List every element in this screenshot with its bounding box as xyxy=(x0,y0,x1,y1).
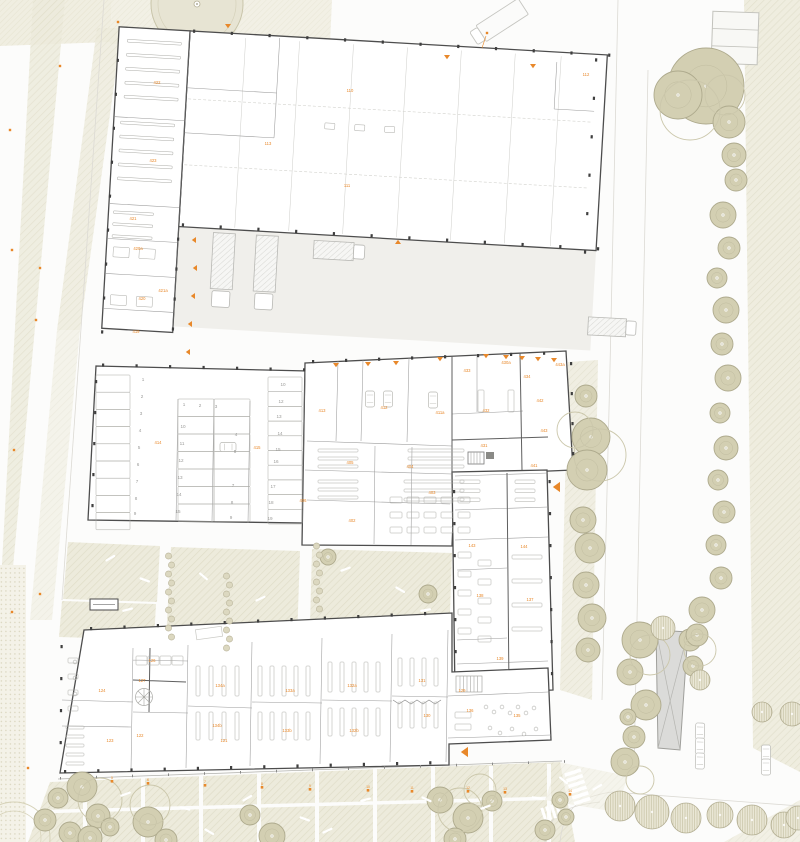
tree-dot xyxy=(544,829,545,830)
room-label: 430a xyxy=(501,360,511,365)
column-tick xyxy=(164,768,166,771)
garden-marker xyxy=(467,790,470,793)
room-label: 139 xyxy=(497,656,505,661)
garden-marker xyxy=(204,784,207,787)
tree xyxy=(707,268,727,288)
column-tick xyxy=(306,36,308,39)
column-tick xyxy=(312,360,314,363)
tree-dot xyxy=(725,309,726,310)
column-tick xyxy=(457,45,459,48)
shrub xyxy=(226,618,232,624)
shrub xyxy=(223,645,229,651)
tree xyxy=(575,533,605,563)
tree-dot xyxy=(109,826,110,827)
parking-number: 8 xyxy=(135,496,138,501)
column-tick xyxy=(60,677,62,680)
tree-dot xyxy=(727,377,728,378)
parking-number: 4 xyxy=(235,432,238,437)
column-tick xyxy=(454,554,456,557)
room-label: 420a xyxy=(133,246,143,251)
column-tick xyxy=(109,194,111,197)
room-label: 135 xyxy=(514,713,522,718)
tree-dot xyxy=(327,556,328,557)
building-top xyxy=(101,25,610,362)
tree xyxy=(718,237,740,259)
column-tick xyxy=(169,365,171,368)
column-tick xyxy=(257,620,259,623)
tree-center xyxy=(783,824,785,826)
garden-marker xyxy=(411,790,414,793)
tree-dot xyxy=(271,835,272,836)
column-tick xyxy=(296,764,298,767)
shrub xyxy=(313,579,319,585)
column-tick xyxy=(550,576,552,579)
tree xyxy=(611,748,639,776)
tree xyxy=(654,71,702,119)
tree-center xyxy=(761,711,763,713)
parking-number: 12 xyxy=(278,399,284,404)
column-tick xyxy=(521,243,523,246)
column-tick xyxy=(107,228,109,231)
room-label: 402 xyxy=(349,518,357,523)
car xyxy=(762,745,771,761)
column-tick xyxy=(113,127,115,130)
column-tick xyxy=(60,709,62,712)
column-tick xyxy=(197,767,199,770)
column-tick xyxy=(549,480,551,483)
column-tick xyxy=(477,354,479,357)
tree xyxy=(101,818,119,836)
parking-number: 5 xyxy=(234,449,237,454)
shrub xyxy=(226,600,232,606)
tree xyxy=(573,572,599,598)
column-tick xyxy=(570,51,572,54)
column-tick xyxy=(348,767,349,770)
tree-dot xyxy=(715,544,716,545)
garden-label: 6 xyxy=(147,778,149,782)
shrub xyxy=(313,561,319,567)
room-label: 433 xyxy=(464,368,472,373)
column-tick xyxy=(363,763,365,766)
tree xyxy=(240,805,260,825)
garden-label: 9 xyxy=(309,784,311,788)
tree-hatched xyxy=(671,803,701,833)
parking-number: 2 xyxy=(141,394,144,399)
shrub xyxy=(316,552,322,558)
shrub xyxy=(168,616,174,622)
column-tick xyxy=(528,761,529,764)
car-body xyxy=(695,738,705,754)
column-tick xyxy=(295,230,297,233)
room-label: 131 xyxy=(419,678,427,683)
garden-label: 5 xyxy=(111,776,113,780)
column-tick xyxy=(193,30,195,33)
room-label: 441 xyxy=(531,463,539,468)
column-tick xyxy=(270,368,272,371)
tree-dot xyxy=(733,154,734,155)
column-tick xyxy=(424,612,426,615)
parking-number: 17 xyxy=(270,484,276,489)
column-tick xyxy=(455,650,457,653)
orange-square-marker xyxy=(9,129,11,131)
car xyxy=(695,738,705,754)
column-tick xyxy=(454,586,456,589)
parking-number: 8 xyxy=(231,500,234,505)
tree xyxy=(48,788,68,808)
tree-dot xyxy=(633,736,634,737)
tree-dot xyxy=(585,395,586,396)
column-tick xyxy=(219,225,221,228)
column-tick xyxy=(446,238,448,241)
tree-center xyxy=(719,814,721,816)
shrub xyxy=(165,589,171,595)
column-tick xyxy=(419,43,421,46)
room-label: 121 xyxy=(221,738,229,743)
column-tick xyxy=(324,617,326,620)
column-tick xyxy=(182,223,184,226)
tree xyxy=(419,585,437,603)
tree-dot xyxy=(589,547,590,548)
column-tick xyxy=(230,766,232,769)
room-label: 403 xyxy=(429,490,437,495)
tree-dot xyxy=(467,817,468,818)
column-tick xyxy=(117,59,119,62)
column-tick xyxy=(588,174,590,177)
site-plan: 422423110112111113421420a420419421a41441… xyxy=(0,0,800,842)
tree-dot xyxy=(97,815,98,816)
orange-square-marker xyxy=(27,767,29,769)
tree-dot xyxy=(725,447,726,448)
tree-dot xyxy=(720,577,721,578)
column-tick xyxy=(454,618,456,621)
column-tick xyxy=(263,765,265,768)
tree xyxy=(576,638,600,662)
tree-dot xyxy=(165,839,166,840)
tree-dot xyxy=(639,639,640,640)
column-tick xyxy=(94,411,96,414)
room-label: 419 xyxy=(133,329,141,334)
room-label: 443 xyxy=(541,428,549,433)
garden-marker xyxy=(367,789,370,792)
parking-number: 1 xyxy=(142,377,145,382)
column-tick xyxy=(290,618,292,621)
shrub xyxy=(223,591,229,597)
column-tick xyxy=(408,236,410,239)
garden-label: 10 xyxy=(366,785,370,789)
car-body xyxy=(366,391,375,407)
tree xyxy=(713,297,739,323)
shrub xyxy=(226,636,232,642)
room-label: 110 xyxy=(347,88,354,93)
tree xyxy=(722,143,746,167)
shrub xyxy=(223,627,229,633)
tree xyxy=(713,501,735,523)
parking-number: 16 xyxy=(273,459,279,464)
orange-square-marker xyxy=(11,611,13,613)
column-tick xyxy=(224,621,226,624)
hall-outline xyxy=(179,31,608,251)
room-label: 413 xyxy=(319,408,327,413)
car-body xyxy=(762,759,771,775)
tree-dot xyxy=(728,247,729,248)
column-tick xyxy=(533,49,535,52)
column-tick xyxy=(102,364,104,367)
shrub xyxy=(223,609,229,615)
parking-number: 10 xyxy=(280,382,286,387)
tree-center xyxy=(797,817,799,819)
column-tick xyxy=(370,234,372,237)
room-label: 137 xyxy=(527,597,535,602)
room-label: 420 xyxy=(139,296,147,301)
column-tick xyxy=(559,245,561,248)
room-label: 421 xyxy=(130,216,138,221)
tree xyxy=(623,726,645,748)
tree-dot xyxy=(454,838,455,839)
column-tick xyxy=(236,367,238,370)
garden-label: 13 xyxy=(503,787,507,791)
parking-number: 15 xyxy=(175,509,181,514)
column-tick xyxy=(303,368,305,371)
tree-dot xyxy=(587,649,588,650)
tree-dot xyxy=(721,343,722,344)
parking-number: 4 xyxy=(139,428,142,433)
parking-number: 13 xyxy=(177,475,183,480)
column-tick xyxy=(344,38,346,41)
tree-dot xyxy=(705,85,706,86)
column-tick xyxy=(60,777,61,780)
column-tick xyxy=(593,97,595,100)
column-tick xyxy=(382,40,384,43)
column-tick xyxy=(172,327,174,330)
orange-square-marker xyxy=(486,32,488,34)
right-strip xyxy=(744,0,800,772)
tree-dot xyxy=(565,816,566,817)
column-tick xyxy=(276,770,277,773)
garden-label: 8 xyxy=(261,782,263,786)
column-tick xyxy=(551,672,553,675)
orange-square-marker xyxy=(117,21,119,23)
parking-number: 12 xyxy=(178,458,184,463)
room-label: 442 xyxy=(537,398,545,403)
tree xyxy=(34,809,56,831)
column-tick xyxy=(357,615,359,618)
tree xyxy=(710,567,732,589)
tree-canopy xyxy=(780,702,800,726)
courtyard-tile xyxy=(63,542,160,602)
column-tick xyxy=(591,135,593,138)
orange-square-marker xyxy=(11,249,13,251)
tree-hatched xyxy=(707,802,733,828)
parking-number: 3 xyxy=(215,404,218,409)
column-tick xyxy=(92,473,94,476)
room-label: 124 xyxy=(99,688,107,693)
tree-hatched xyxy=(752,702,772,722)
tree-hatched xyxy=(635,795,669,829)
column-tick xyxy=(111,161,113,164)
column-tick xyxy=(103,296,105,299)
orange-square-marker xyxy=(35,319,37,321)
tree-dot xyxy=(69,832,70,833)
tree-dot xyxy=(627,716,628,717)
tree xyxy=(620,709,636,725)
tree-hatched xyxy=(690,670,710,690)
column-tick xyxy=(595,58,597,61)
column-tick xyxy=(97,769,99,772)
room-label: 133b xyxy=(282,728,292,733)
shrub xyxy=(165,625,171,631)
car-body xyxy=(762,745,771,761)
parking-number: 10 xyxy=(180,424,186,429)
tree-dot xyxy=(692,665,693,666)
tree xyxy=(689,597,715,623)
room-label: 431 xyxy=(481,443,489,448)
car-body xyxy=(695,723,705,739)
room-label: 113 xyxy=(265,141,272,146)
garden-marker xyxy=(569,793,572,796)
room-label: 123 xyxy=(107,738,115,743)
elevator xyxy=(486,452,494,459)
parking-number: 18 xyxy=(268,500,274,505)
tree xyxy=(725,169,747,191)
room-label: 404 xyxy=(407,464,415,469)
room-label: 434 xyxy=(524,374,532,379)
tree-center xyxy=(619,805,621,807)
column-tick xyxy=(571,392,573,395)
column-tick xyxy=(177,237,179,240)
tree-dot xyxy=(559,799,560,800)
car-body xyxy=(695,753,705,769)
column-tick xyxy=(157,624,159,627)
room-label: 133a xyxy=(285,688,295,693)
column-tick xyxy=(396,762,398,765)
parking-number: 11 xyxy=(180,441,185,446)
column-tick xyxy=(551,640,553,643)
column-tick xyxy=(429,761,431,764)
tree xyxy=(552,792,568,808)
room-label: 132a xyxy=(347,683,357,688)
tree-dot xyxy=(722,214,723,215)
garden-marker xyxy=(111,780,114,783)
column-tick xyxy=(549,544,551,547)
room-label: 138 xyxy=(477,593,485,598)
column-tick xyxy=(240,771,241,774)
tree-center xyxy=(791,713,793,715)
tree-dot xyxy=(591,617,592,618)
parking-number: 15 xyxy=(275,447,281,452)
column-tick xyxy=(510,353,512,356)
tree-hatched xyxy=(780,702,800,726)
garden-marker xyxy=(261,786,264,789)
shrub xyxy=(165,571,171,577)
column-tick xyxy=(91,504,93,507)
room-label: 422 xyxy=(154,80,162,85)
car-body xyxy=(429,392,438,408)
tree xyxy=(535,820,555,840)
column-tick xyxy=(586,212,588,215)
orange-square-marker xyxy=(59,65,61,67)
column-tick xyxy=(584,250,586,253)
room-label: 421a xyxy=(158,288,168,293)
column-tick xyxy=(444,355,446,358)
room-label: 111 xyxy=(344,183,351,188)
column-tick xyxy=(550,608,552,611)
garden-marker xyxy=(309,788,312,791)
tree-center xyxy=(699,679,701,681)
column-tick xyxy=(203,366,205,369)
room-label: 415 xyxy=(254,445,262,450)
room-label: 136 xyxy=(467,708,475,713)
room-label: 443a xyxy=(555,362,565,367)
shrub xyxy=(168,562,174,568)
column-tick xyxy=(175,267,177,270)
room-label: 127 xyxy=(139,678,147,683)
column-tick xyxy=(60,741,62,744)
column-tick xyxy=(453,522,455,525)
column-tick xyxy=(257,228,259,231)
column-tick xyxy=(456,764,457,767)
car xyxy=(695,753,705,769)
tree-dot xyxy=(735,179,736,180)
room-label: 130 xyxy=(424,713,432,718)
column-tick xyxy=(64,770,66,773)
column-tick xyxy=(549,512,551,515)
parking-number: 19 xyxy=(267,516,273,521)
car xyxy=(429,392,438,408)
parking-number: 14 xyxy=(176,492,182,497)
tree-dot xyxy=(717,479,718,480)
column-tick xyxy=(492,763,493,766)
tree xyxy=(715,365,741,391)
parking-number: 7 xyxy=(136,479,139,484)
room-label: 126 xyxy=(149,658,157,663)
column-tick xyxy=(333,232,335,235)
spiral-stair xyxy=(136,689,153,706)
left-dotted-strip xyxy=(0,565,26,842)
room-label: 411a xyxy=(435,410,445,415)
room-label: 134a xyxy=(215,683,225,688)
room-label: 134b xyxy=(212,723,222,728)
room-label: 144 xyxy=(521,544,529,549)
tree-dot xyxy=(147,821,148,822)
column-tick xyxy=(105,262,107,265)
car xyxy=(366,391,375,407)
car xyxy=(695,723,705,739)
room-label: 414 xyxy=(155,440,163,445)
column-tick xyxy=(330,764,332,767)
parking-number: 13 xyxy=(276,414,282,419)
tree-center xyxy=(751,819,753,821)
tree-dot xyxy=(427,593,428,594)
shrub xyxy=(313,597,319,603)
garden-marker xyxy=(147,782,150,785)
room-label: 132b xyxy=(349,728,359,733)
tree-dot xyxy=(586,469,587,470)
site-plan-page: 422423110112111113421420a420419421a41441… xyxy=(0,0,800,842)
column-tick xyxy=(597,247,599,250)
column-tick xyxy=(564,760,565,763)
tree xyxy=(558,809,574,825)
tree xyxy=(578,604,606,632)
shrub xyxy=(165,607,171,613)
room-label: 406 xyxy=(300,498,308,503)
garden-marker xyxy=(504,791,507,794)
column-tick xyxy=(136,364,138,367)
column-tick xyxy=(312,769,313,772)
room-label: 412 xyxy=(381,405,389,410)
column-tick xyxy=(484,241,486,244)
tree xyxy=(714,436,738,460)
tree-dot xyxy=(723,511,724,512)
